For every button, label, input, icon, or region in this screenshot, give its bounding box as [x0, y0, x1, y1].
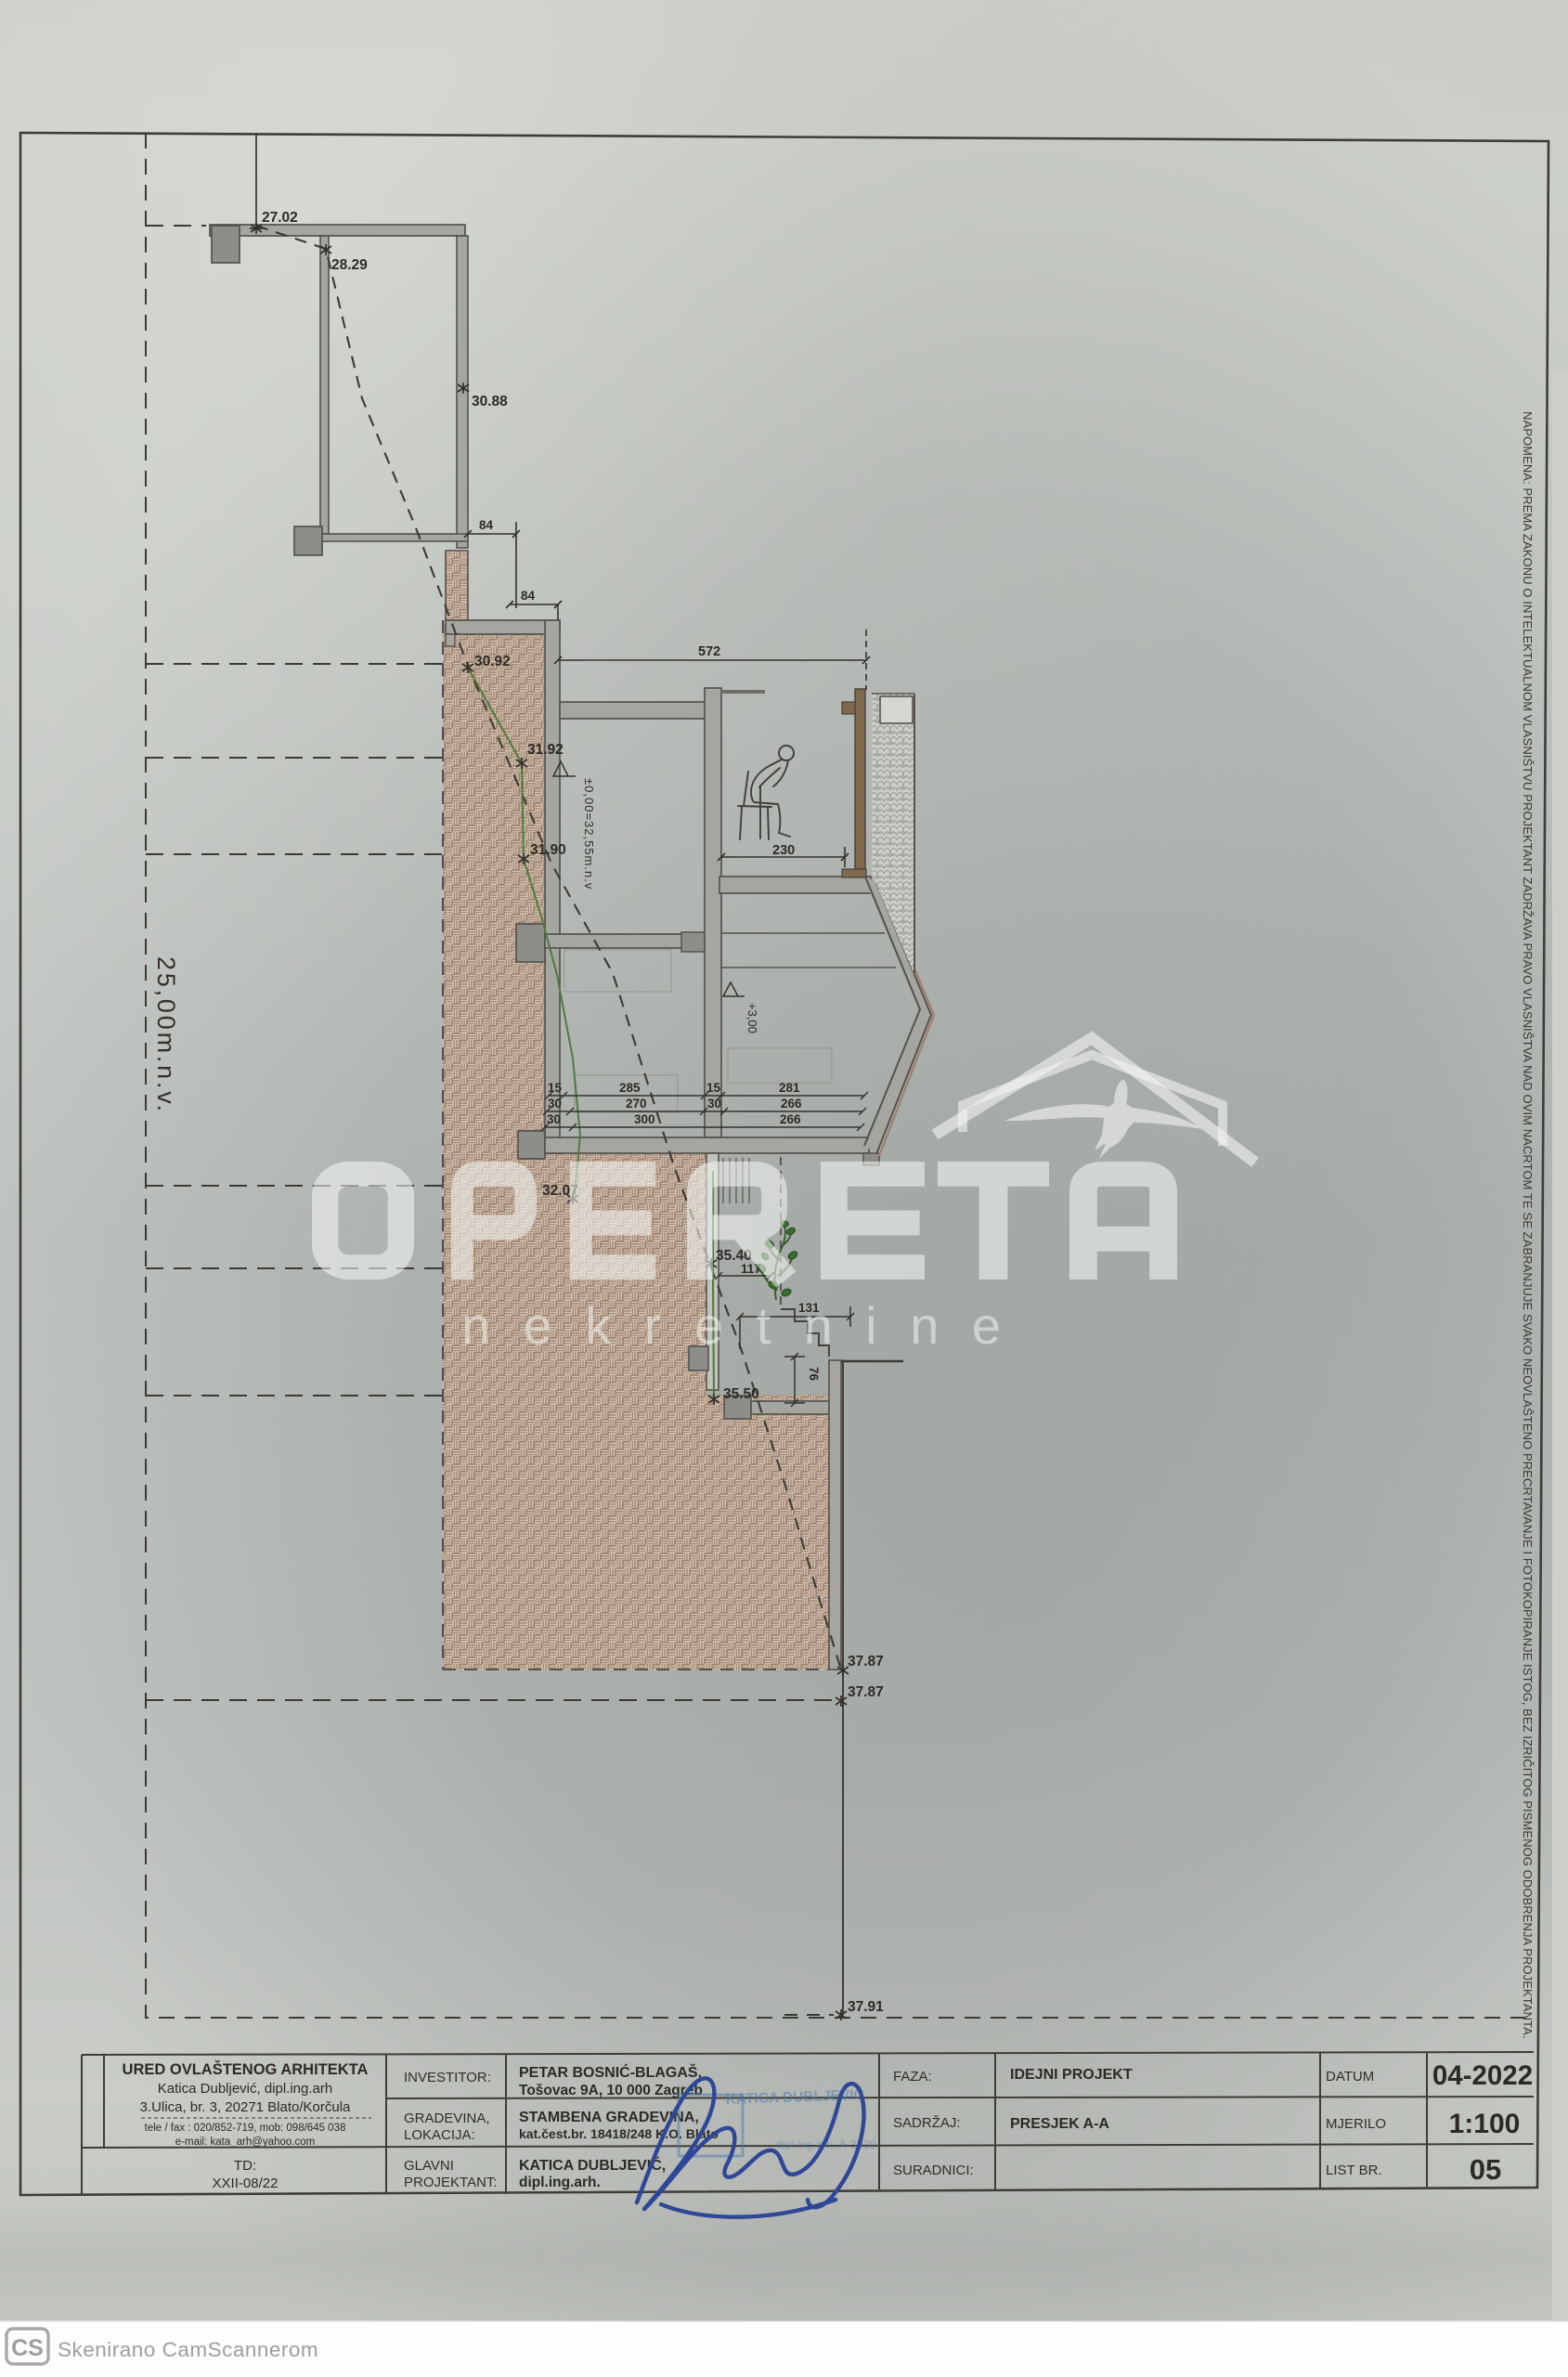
svg-text:30.88: 30.88 [472, 394, 508, 409]
svg-text:+3,00: +3,00 [745, 1003, 759, 1033]
svg-text:30: 30 [548, 1097, 562, 1111]
svg-text:Tošovac 9A, 10 000 Zagreb: Tošovac 9A, 10 000 Zagreb [519, 2083, 703, 2098]
svg-text:35.50: 35.50 [723, 1386, 759, 1402]
svg-text:MJERILO: MJERILO [1326, 2116, 1386, 2132]
svg-text:15: 15 [706, 1081, 721, 1095]
svg-text:27.02: 27.02 [262, 210, 298, 226]
svg-text:285: 285 [619, 1081, 641, 1095]
svg-text:LIST BR.: LIST BR. [1326, 2163, 1382, 2178]
svg-text:281: 281 [779, 1081, 800, 1095]
svg-text:30: 30 [547, 1112, 561, 1126]
svg-text:INVESTITOR:: INVESTITOR: [404, 2070, 491, 2085]
svg-text:PRESJEK A-A: PRESJEK A-A [1010, 2116, 1109, 2132]
svg-text:DATUM: DATUM [1326, 2069, 1374, 2085]
svg-text:tele / fax : 020/852-719, mob:: tele / fax : 020/852-719, mob: 098/645 0… [145, 2123, 346, 2134]
svg-text:3.Ulica, br. 3, 20271 Blato/K: 3.Ulica, br. 3, 20271 Blato/Korčula [140, 2099, 351, 2115]
svg-text:84: 84 [521, 589, 536, 603]
svg-text:SADRŽAJ:: SADRŽAJ: [893, 2115, 961, 2131]
svg-text:KATICA DUBLJEVIĆ,: KATICA DUBLJEVIĆ, [519, 2156, 666, 2174]
svg-text:URED OVLAŠTENOG ARHITEKTA: URED OVLAŠTENOG ARHITEKTA [123, 2060, 369, 2078]
svg-text:NAPOMENA: PREMA ZAKONU O INTEL: NAPOMENA: PREMA ZAKONU O INTELEKTUALNOM … [1521, 411, 1535, 2039]
svg-text:84: 84 [479, 518, 494, 532]
svg-text:PETAR BOSNIĆ-BLAGAŠ,: PETAR BOSNIĆ-BLAGAŠ, [519, 2063, 702, 2081]
svg-text:15: 15 [548, 1081, 563, 1095]
svg-text:e-mail: kata_arh@yahoo.com: e-mail: kata_arh@yahoo.com [175, 2137, 315, 2148]
svg-text:GLAVNI: GLAVNI [404, 2158, 454, 2174]
svg-text:LOKACIJA:: LOKACIJA: [404, 2127, 475, 2143]
svg-text:±0,00=32,55m.n.v: ±0,00=32,55m.n.v [582, 778, 596, 890]
svg-text:nekretnine: nekretnine [461, 1296, 1034, 1355]
svg-text:Katica Dubljević, dipl.ing.arh: Katica Dubljević, dipl.ing.arh [158, 2081, 332, 2097]
svg-text:05: 05 [1470, 2153, 1501, 2186]
svg-text:230: 230 [772, 843, 795, 858]
svg-text:PROJEKTANT:: PROJEKTANT: [404, 2175, 498, 2190]
svg-text:270: 270 [626, 1097, 647, 1111]
svg-text:31.90: 31.90 [530, 842, 566, 858]
svg-text:1:100: 1:100 [1449, 2109, 1521, 2139]
svg-text:31.92: 31.92 [527, 742, 564, 758]
svg-text:kat.čest.br. 18418/248 K.O. Bl: kat.čest.br. 18418/248 K.O. Blato [519, 2126, 719, 2141]
svg-text:37.87: 37.87 [848, 1684, 884, 1700]
svg-text:GRADEVINA,: GRADEVINA, [404, 2111, 490, 2126]
svg-text:266: 266 [780, 1112, 801, 1126]
svg-text:XXII-08/22: XXII-08/22 [213, 2176, 279, 2191]
svg-text:30.92: 30.92 [474, 654, 511, 669]
svg-text:300: 300 [634, 1112, 655, 1126]
svg-text:266: 266 [781, 1097, 802, 1111]
svg-text:Skenirano CamScannerom: Skenirano CamScannerom [58, 2338, 318, 2361]
svg-text:25,00m.n.v.: 25,00m.n.v. [152, 956, 180, 1114]
svg-text:37.91: 37.91 [848, 1999, 884, 2015]
svg-text:28.29: 28.29 [331, 257, 368, 273]
svg-text:FAZA:: FAZA: [893, 2069, 932, 2085]
svg-text:IDEJNI PROJEKT: IDEJNI PROJEKT [1010, 2067, 1133, 2083]
svg-text:04-2022: 04-2022 [1432, 2060, 1533, 2091]
svg-text:TD:: TD: [234, 2158, 256, 2174]
svg-text:572: 572 [698, 644, 720, 659]
svg-text:CS: CS [11, 2335, 44, 2361]
svg-text:SURADNICI:: SURADNICI: [893, 2163, 974, 2178]
svg-text:37.87: 37.87 [848, 1654, 884, 1669]
svg-text:30: 30 [707, 1097, 721, 1111]
svg-text:76: 76 [807, 1367, 821, 1382]
svg-text:dipl.ing.arh.: dipl.ing.arh. [519, 2175, 601, 2190]
